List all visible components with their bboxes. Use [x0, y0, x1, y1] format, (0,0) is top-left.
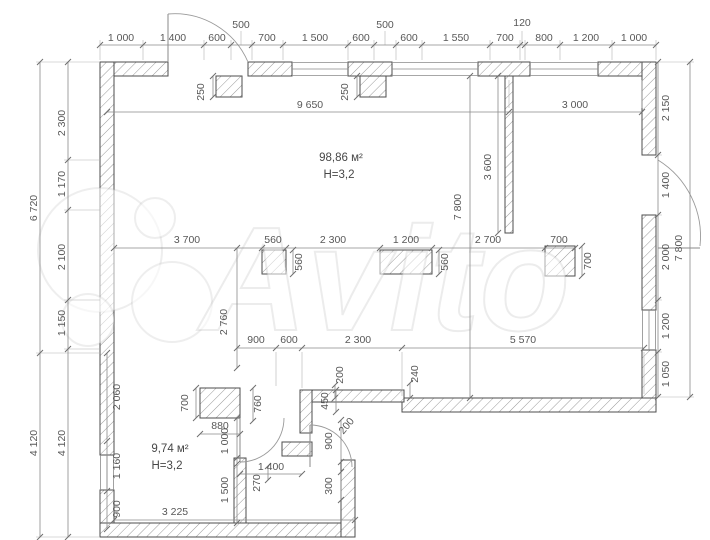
dim-label: 1 050 — [660, 361, 672, 387]
dim-label: 560 — [293, 253, 305, 271]
dim-label: 1 000 — [621, 32, 647, 44]
dim-label: 3 600 — [482, 154, 494, 180]
dim-label: 1 500 — [219, 477, 231, 503]
dim-label: 2 150 — [660, 95, 672, 121]
dim-label: 3 000 — [562, 99, 588, 111]
dim-label: 1 400 — [160, 32, 186, 44]
dim-label: 2 760 — [218, 309, 230, 335]
dim-label: 600 — [352, 32, 370, 44]
dim-label: 1 500 — [302, 32, 328, 44]
wall-bottom-left — [100, 523, 355, 537]
dim-label: 1 200 — [393, 234, 419, 246]
dim-label: 560 — [439, 253, 451, 271]
floor-plan-svg: Avito 1 000 1 400 600 700 1 500 600 600 … — [0, 0, 710, 540]
dim-label: 7 800 — [673, 235, 685, 261]
dim-label: 300 — [323, 477, 335, 495]
floor-plan-screenshot: Avito 1 000 1 400 600 700 1 500 600 600 … — [0, 0, 710, 540]
dim-label: 900 — [111, 500, 123, 518]
dim-label: 4 120 — [28, 430, 40, 456]
dim-label: 2 100 — [56, 244, 68, 270]
dim-label: 4 120 — [56, 430, 68, 456]
wall-pier-lobby — [200, 388, 240, 418]
dim-label: 3 225 — [162, 506, 188, 518]
pilaster-2 — [360, 76, 386, 97]
watermark: Avito — [38, 188, 570, 362]
wall-bottom-right — [402, 398, 656, 412]
watermark-circle-4 — [135, 198, 175, 238]
dim-label: 200 — [334, 366, 346, 384]
dim-label: 600 — [400, 32, 418, 44]
dim-label: 2 300 — [320, 234, 346, 246]
dim-label: 700 — [258, 32, 276, 44]
room-area-label: 9,74 м² — [151, 443, 188, 455]
dim-label: 7 800 — [452, 194, 464, 220]
dim-label: 700 — [550, 234, 568, 246]
dim-label: 250 — [195, 83, 207, 101]
dim-label: 600 — [208, 32, 226, 44]
dim-label: 1 400 — [258, 461, 284, 473]
dim-label: 1 200 — [660, 313, 672, 339]
dim-label: 600 — [280, 334, 298, 346]
dim-label: 1 170 — [56, 171, 68, 197]
dim-label: 760 — [252, 395, 264, 413]
wall-stub-block — [282, 442, 312, 456]
wall-smallroom-right — [234, 458, 246, 523]
dim-label: 2 060 — [111, 384, 123, 410]
wall-right-1 — [642, 62, 656, 155]
dim-label: 450 — [319, 392, 331, 410]
dim-label: 1 000 — [108, 32, 134, 44]
dim-label: 270 — [251, 474, 263, 492]
watermark-circle-3 — [62, 294, 114, 346]
room-height-label: Н=3,2 — [151, 460, 182, 472]
wall-right-2 — [642, 215, 656, 310]
dim-label: 700 — [496, 32, 514, 44]
dim-label: 700 — [582, 252, 594, 270]
dim-label: 1 160 — [111, 453, 123, 479]
dim-label: 500 — [376, 19, 394, 31]
dim-label: 2 300 — [345, 334, 371, 346]
dim-label: 2 300 — [56, 110, 68, 136]
dim-label: 2 700 — [475, 234, 501, 246]
room-area-label: 98,86 м² — [319, 152, 363, 164]
dim-label: 9 650 — [297, 99, 323, 111]
dim-label: 6 720 — [28, 195, 40, 221]
wall-top-2 — [248, 62, 292, 76]
dim-label: 1 400 — [660, 172, 672, 198]
dim-label: 1 550 — [443, 32, 469, 44]
window-top-3 — [530, 63, 598, 76]
dim-label: 1 000 — [219, 428, 231, 454]
dim-label: 240 — [409, 365, 421, 383]
dim-label: 500 — [232, 19, 250, 31]
window-top-2 — [392, 63, 478, 76]
pilaster-1 — [216, 76, 242, 97]
dim-label: 250 — [339, 83, 351, 101]
door-arc-smallroom — [240, 418, 284, 462]
window-top-1 — [292, 63, 348, 76]
dim-label: 120 — [513, 17, 531, 29]
window-right — [643, 310, 656, 350]
dim-label: 5 570 — [510, 334, 536, 346]
dim-label: 900 — [323, 432, 335, 450]
dim-label: 800 — [535, 32, 553, 44]
wall-top-4 — [478, 62, 530, 76]
dim-label: 1 150 — [56, 310, 68, 336]
dim-label: 2 000 — [660, 244, 672, 270]
dim-label: 900 — [247, 334, 265, 346]
room-height-label: Н=3,2 — [323, 169, 354, 181]
dim-label: 200 — [336, 415, 357, 436]
dim-label: 560 — [264, 234, 282, 246]
dim-label: 700 — [179, 394, 191, 412]
wall-top-3 — [348, 62, 392, 76]
dim-label: 3 700 — [174, 234, 200, 246]
dim-label: 1 200 — [573, 32, 599, 44]
